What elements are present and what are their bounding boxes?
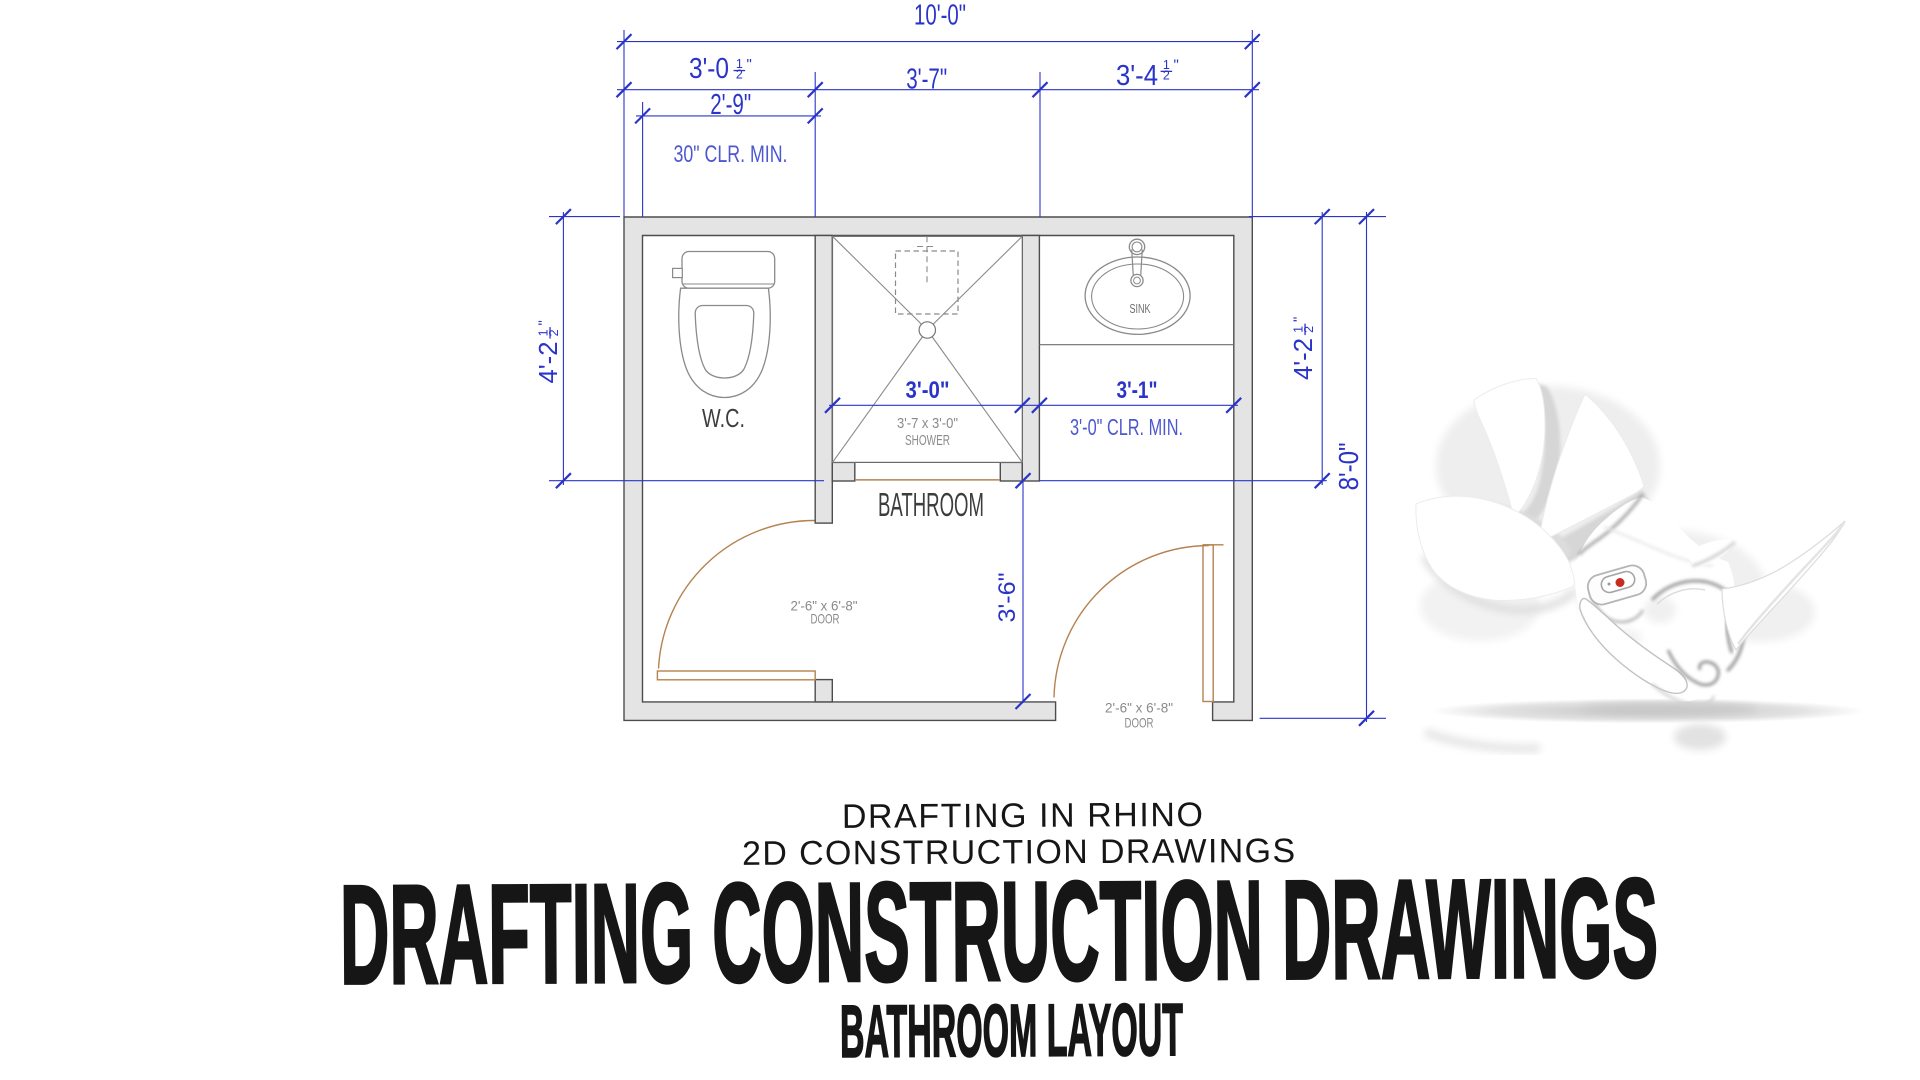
svg-text:2'-6" x 6'-8": 2'-6" x 6'-8" — [1105, 700, 1173, 716]
svg-text:3'-4: 3'-4 — [1116, 60, 1158, 92]
svg-text:3'-0" CLR. MIN.: 3'-0" CLR. MIN. — [1070, 414, 1183, 440]
svg-text:": " — [536, 320, 553, 325]
svg-text:2'-9": 2'-9" — [710, 89, 751, 121]
svg-text:": " — [1174, 57, 1179, 74]
svg-text:4'-2: 4'-2 — [1288, 338, 1318, 380]
svg-text:SHOWER: SHOWER — [905, 432, 950, 449]
svg-text:3'-7 x 3'-0": 3'-7 x 3'-0" — [897, 415, 958, 432]
svg-text:": " — [1291, 317, 1308, 322]
svg-text:3'-7": 3'-7" — [906, 64, 947, 96]
svg-text:3'-0: 3'-0 — [689, 53, 729, 85]
svg-text:DRAFTING IN RHINO: DRAFTING IN RHINO — [842, 796, 1203, 836]
svg-text:3'-1": 3'-1" — [1117, 377, 1158, 404]
svg-text:SINK: SINK — [1130, 301, 1151, 316]
svg-text:3'-6": 3'-6" — [994, 573, 1021, 623]
svg-text:DOOR: DOOR — [811, 611, 840, 627]
svg-text:DOOR: DOOR — [1125, 715, 1154, 731]
svg-text:30" CLR. MIN.: 30" CLR. MIN. — [674, 141, 788, 168]
svg-text:BATHROOM: BATHROOM — [878, 486, 984, 523]
svg-text:2: 2 — [1163, 68, 1170, 82]
svg-text:4'-2: 4'-2 — [533, 342, 563, 384]
svg-text:2: 2 — [736, 68, 743, 82]
svg-text:BATHROOM LAYOUT: BATHROOM LAYOUT — [840, 988, 1183, 1073]
svg-text:3'-0": 3'-0" — [906, 377, 950, 404]
svg-text:8'-0": 8'-0" — [1333, 442, 1364, 490]
svg-text:10'-0": 10'-0" — [914, 0, 966, 32]
svg-text:2: 2 — [547, 329, 561, 336]
svg-text:2: 2 — [1302, 326, 1316, 333]
svg-text:": " — [747, 56, 752, 73]
svg-text:W.C.: W.C. — [702, 403, 745, 433]
